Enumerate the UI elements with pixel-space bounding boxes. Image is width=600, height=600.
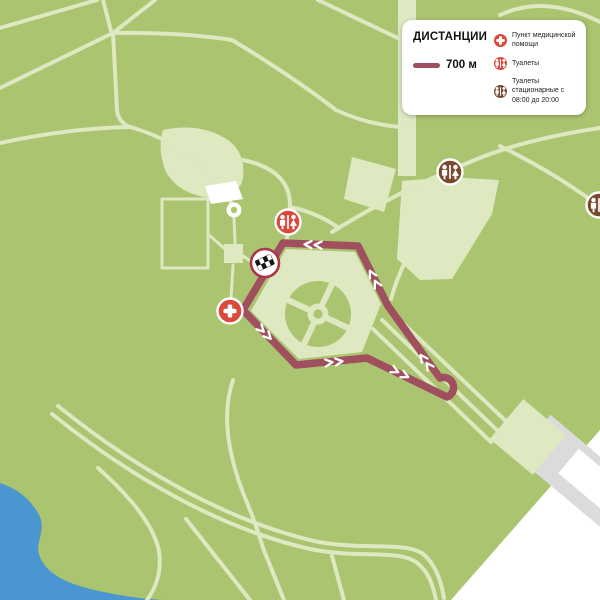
toilet-icon — [494, 57, 507, 70]
toilet-stationary-marker — [438, 160, 463, 185]
central-roundabout — [285, 281, 351, 347]
toilet-icon — [280, 215, 297, 229]
course-map: ДИСТАНЦИИ 700 м Пункт медицинской помощи… — [0, 0, 600, 600]
legend-title: ДИСТАНЦИИ — [413, 31, 485, 43]
toilet-stationary-marker — [587, 193, 600, 218]
toilet-icon — [494, 85, 507, 98]
distance-line-swatch — [413, 63, 440, 68]
legend-item: Туалеты стационарные с 08:00 до 20:00 — [494, 77, 576, 105]
distance-row: 700 м — [413, 59, 485, 71]
legend-item-label: Пункт медицинской помощи — [512, 31, 576, 50]
legend-item: Туалеты — [494, 57, 576, 70]
toilet-icon — [442, 165, 459, 179]
distance-label: 700 м — [446, 59, 477, 71]
legend-panel: ДИСТАНЦИИ 700 м Пункт медицинской помощи… — [402, 20, 586, 115]
medical-aid-marker — [218, 299, 243, 324]
legend-items: Пункт медицинской помощи Туалеты Туалеты… — [494, 31, 576, 105]
legend-distances: ДИСТАНЦИИ 700 м — [413, 31, 485, 105]
toilet-marker — [276, 210, 301, 235]
finish-marker — [251, 249, 279, 277]
legend-item-label: Туалеты стационарные с 08:00 до 20:00 — [512, 77, 576, 105]
legend-item-label: Туалеты — [512, 59, 539, 68]
medical-cross-icon — [494, 34, 507, 47]
legend-item: Пункт медицинской помощи — [494, 31, 576, 50]
